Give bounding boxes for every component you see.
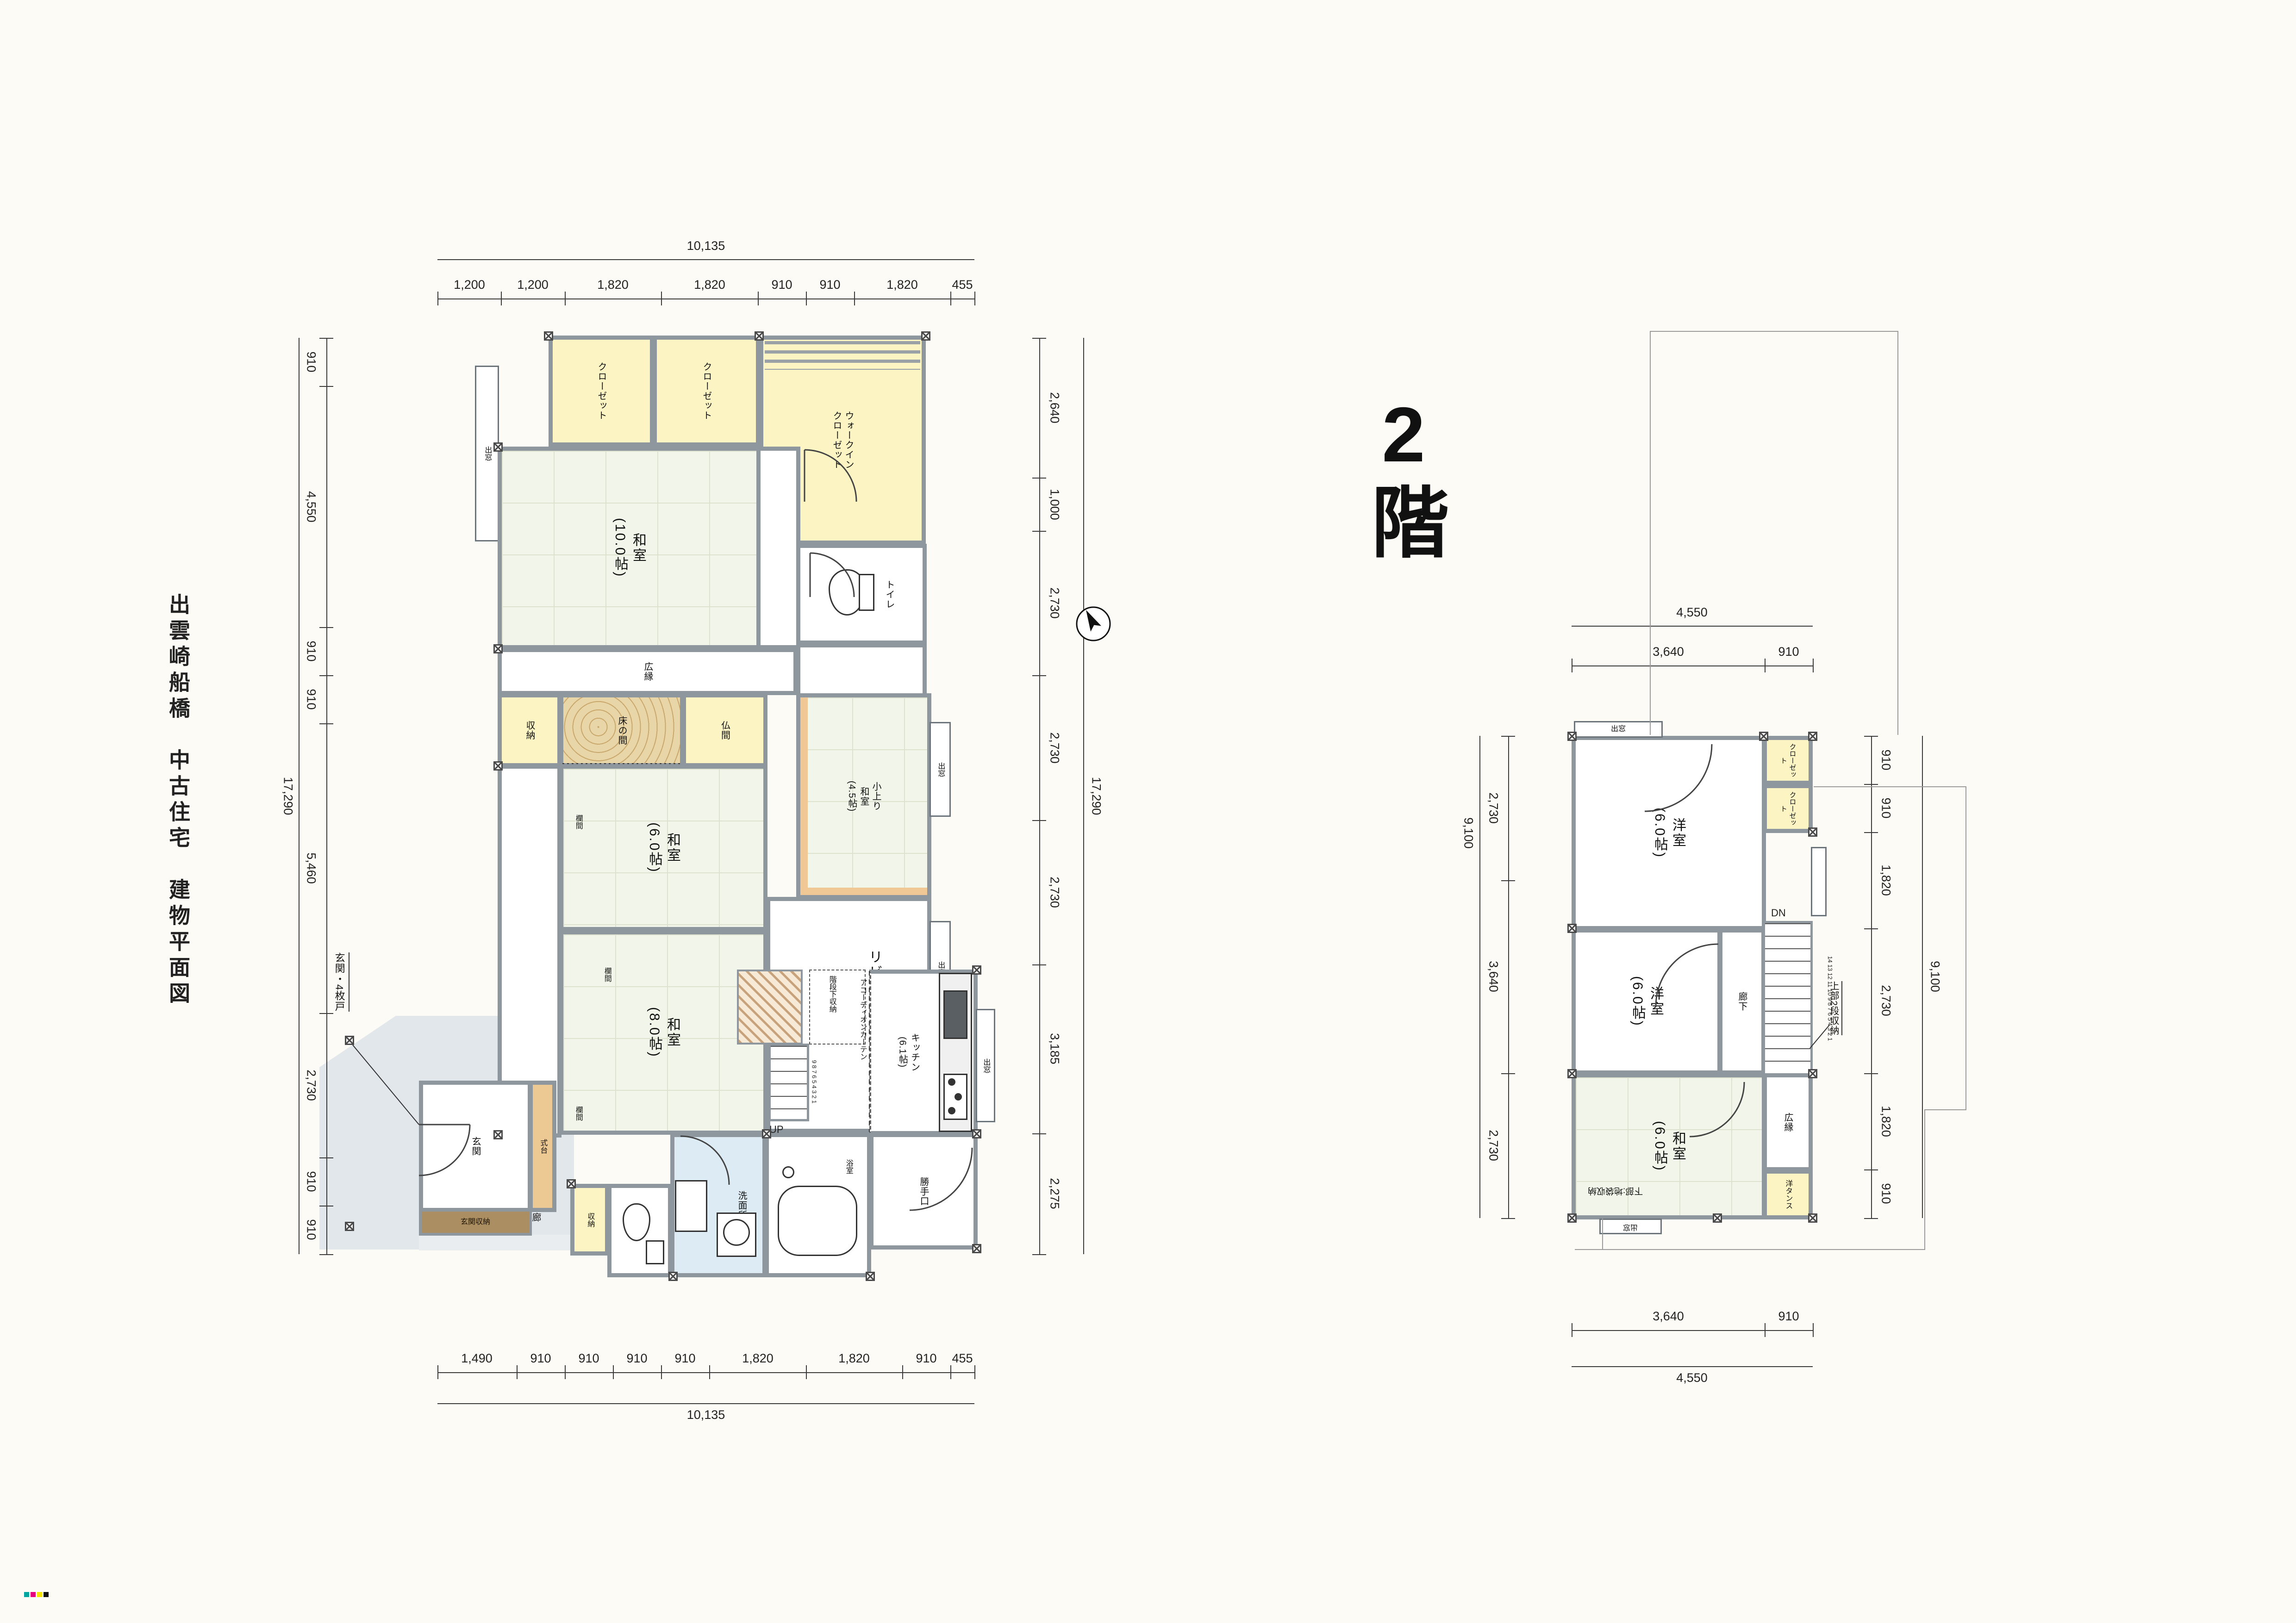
dim: 3,640	[1486, 961, 1501, 992]
stairs-2f-dn-label: DN	[1771, 907, 1786, 919]
dim-line	[299, 338, 299, 1254]
room-storage-hall: 収納	[570, 1184, 609, 1256]
room-washitsu-2f-label: 和室 (6.0帖)	[1651, 1121, 1687, 1172]
room-yoshitsu-b: 洋室 (6.0帖)	[1572, 928, 1722, 1075]
bay-window-west-label: 出窓	[482, 446, 492, 461]
vanity-icon	[675, 1180, 707, 1232]
bay-window-kitchen-label: 出窓	[981, 1058, 991, 1073]
dim: 2,730	[1879, 985, 1893, 1016]
dim: 1,820	[886, 278, 918, 292]
room-butsuma-label: 仏間	[719, 721, 731, 740]
dim: 2,275	[1048, 1178, 1062, 1209]
room-washitsu-10-label: 和室 (10.0帖)	[611, 518, 647, 578]
dim: 3,640	[1653, 1309, 1684, 1324]
dim: 1,820	[597, 278, 629, 292]
dim: 910	[304, 689, 318, 709]
dim: 1,820	[1879, 1106, 1893, 1137]
room-closet-2f-b: クローゼット	[1763, 784, 1813, 833]
room-butsuma: 仏間	[682, 693, 767, 767]
drawing-title: 出雲崎船橋 中古住宅 建物平面図	[163, 593, 193, 1008]
room-kitchen-61-label: キッチン (6.1帖)	[897, 1033, 921, 1072]
dim: 1,820	[742, 1351, 774, 1366]
corridor-2f: 廊下	[1718, 928, 1766, 1075]
dim: 455	[952, 278, 973, 292]
room-shikidai-label: 式台	[538, 1139, 548, 1154]
dim: 2,730	[1486, 1130, 1501, 1161]
floor2-title: 2階	[1365, 391, 1442, 563]
room-walkin-closet-label: ウォークイン クローゼット	[830, 411, 855, 469]
ranma-tag-1: 欄間	[573, 815, 583, 829]
dim-line	[437, 1372, 974, 1373]
dim-f1-left-total: 17,290	[281, 777, 295, 815]
stove-burner-icon	[948, 1107, 955, 1114]
dim: 910	[626, 1351, 647, 1366]
room-washitsu-8: 和室 (8.0帖)	[559, 930, 767, 1135]
genkan-storage-label: 玄関収納	[461, 1218, 490, 1227]
dim-line	[437, 298, 974, 299]
walkin-closet-hatch	[765, 341, 920, 370]
dim: 910	[1879, 797, 1893, 818]
ranma-tag-2: 欄間	[602, 967, 611, 982]
stairs-1f	[768, 1044, 809, 1121]
room-storage-tokonoma-label: 収納	[524, 721, 536, 740]
floor-plan-sheet: 出雲崎船橋 中古住宅 建物平面図 1階 2階 クローゼット クローゼット ウォー…	[0, 0, 2296, 1623]
room-hiroen-2f-label: 広縁	[1782, 1113, 1794, 1132]
dim-f2-bottom-total: 4,550	[1676, 1371, 1708, 1385]
dim: 910	[1879, 1183, 1893, 1204]
room-shikidai: 式台	[529, 1081, 556, 1212]
dim-line	[1083, 338, 1084, 1254]
dim: 910	[304, 351, 318, 372]
dim: 910	[304, 640, 318, 661]
room-tokonoma-label: 床の間	[616, 716, 628, 745]
north-compass-icon	[1077, 607, 1110, 640]
dim: 455	[952, 1351, 973, 1366]
drain-icon	[782, 1166, 794, 1178]
dim: 910	[578, 1351, 599, 1366]
dim: 5,460	[304, 852, 318, 884]
room-yoshitsu-a: 洋室 (6.0帖)	[1572, 736, 1766, 930]
room-washitsu-2f: 和室 (6.0帖)	[1572, 1073, 1766, 1219]
overlay-graphics	[0, 0, 2296, 1623]
dim-line	[1572, 626, 1813, 627]
dim-f2-left-total: 9,100	[1461, 817, 1476, 849]
dim-line	[326, 338, 327, 1254]
dim: 910	[916, 1351, 936, 1366]
dim: 1,820	[838, 1351, 870, 1366]
stove-burner-icon	[955, 1093, 962, 1101]
genkan-door-note: 玄関・4枚戸	[332, 952, 349, 1012]
genkan-storage: 玄関収納	[419, 1209, 532, 1236]
room-washitsu-6: 和室 (6.0帖)	[559, 765, 767, 931]
bay-window-2f-bottom-label: 出窓	[1623, 1222, 1638, 1231]
bay-window-2f-top: 出窓	[1574, 721, 1663, 738]
room-genkan: 玄関	[419, 1081, 532, 1212]
dim-f2-top-total: 4,550	[1676, 605, 1708, 620]
lower-storage-note: 下部:地袋収納	[1588, 1185, 1643, 1196]
room-closet-2: クローゼット	[653, 336, 760, 447]
room-washitsu-8-label: 和室 (8.0帖)	[645, 1007, 681, 1058]
dim: 910	[530, 1351, 551, 1366]
dim-line	[1039, 338, 1040, 1254]
room-hiroen-1f: 広縁	[498, 648, 798, 695]
hall-upper	[756, 447, 800, 649]
stairs-2f	[1763, 921, 1813, 1078]
dim: 4,550	[304, 491, 318, 522]
dim-line	[1871, 736, 1872, 1218]
toilet-sink-icon	[646, 1240, 664, 1264]
bay-window-east-1-label: 出窓	[936, 762, 945, 777]
dim: 910	[1879, 749, 1893, 770]
dim-f2-right-total: 9,100	[1928, 961, 1942, 992]
dim: 3,640	[1653, 645, 1684, 659]
bay-window-2f-bottom: 出窓	[1599, 1219, 1662, 1234]
dim: 2,730	[1048, 732, 1062, 764]
stove-burner-icon	[948, 1078, 955, 1086]
room-storage-tokonoma: 収納	[498, 693, 562, 767]
dim-f1-top-total: 10,135	[687, 239, 725, 253]
room-yoshitsu-b-label: 洋室 (6.0帖)	[1628, 976, 1665, 1027]
dim-line	[1572, 1366, 1813, 1367]
bay-window-east-1: 出窓	[930, 722, 951, 817]
dim: 910	[1778, 645, 1799, 659]
kitchen-sink-icon	[943, 990, 967, 1039]
dim: 1,490	[461, 1351, 493, 1366]
room-yoshitsu-a-label: 洋室 (6.0帖)	[1651, 808, 1687, 858]
dim-line	[1572, 1330, 1813, 1331]
dim: 2,730	[1048, 877, 1062, 908]
bay-window-kitchen: 出窓	[976, 1009, 995, 1122]
room-washitsu-6-label: 和室 (6.0帖)	[645, 822, 681, 873]
room-closet-2f-a: クローゼット	[1763, 736, 1813, 785]
dim-f1-right-total: 17,290	[1089, 777, 1104, 815]
bay-window-west: 出窓	[475, 366, 499, 541]
dim: 2,730	[304, 1070, 318, 1101]
washer-drum-icon	[723, 1219, 750, 1246]
dim: 910	[771, 278, 792, 292]
room-closet-2f-a-label: クローゼット	[1779, 740, 1797, 781]
room-hiroen-1f-label: 広縁	[642, 662, 654, 681]
dim: 2,730	[1048, 587, 1062, 619]
bathtub-icon	[778, 1186, 857, 1256]
room-closet-2-label: クローゼット	[700, 362, 712, 420]
room-koagari-washitsu: 小上り 和室 (4.5帖)	[796, 693, 931, 899]
dim: 2,640	[1048, 392, 1062, 423]
dim-line	[1508, 736, 1509, 1218]
room-katteguchi-label: 勝手口	[917, 1177, 930, 1206]
room-toilet-north-label: トイレ	[883, 580, 895, 609]
stair-hatch-1f	[737, 970, 803, 1045]
dim-line	[1922, 736, 1923, 1218]
room-bath-label: 浴室	[843, 1159, 853, 1174]
room-closet-2f-b-label: クローゼット	[1779, 788, 1797, 829]
room-katteguchi: 勝手口	[869, 1133, 978, 1250]
dim-f1-bottom-total: 10,135	[687, 1408, 725, 1422]
dim: 1,200	[517, 278, 549, 292]
room-yotansu-label: 洋タンス	[1783, 1180, 1793, 1209]
dim: 910	[304, 1171, 318, 1192]
dim: 1,820	[694, 278, 725, 292]
bay-window-2f-top-label: 出窓	[1611, 725, 1626, 734]
understair-storage-label: 階段下収納	[827, 976, 836, 1013]
accordion-curtain-label: アコーディオンカーテン	[857, 979, 867, 1060]
dim: 1,820	[1879, 864, 1893, 896]
porch-step	[419, 1235, 574, 1250]
dim: 910	[1778, 1309, 1799, 1324]
dim: 3,185	[1048, 1033, 1062, 1064]
dim-line	[1572, 665, 1813, 666]
room-washitsu-10: 和室 (10.0帖)	[498, 447, 761, 649]
dim: 910	[819, 278, 840, 292]
room-closet-1-label: クローゼット	[595, 362, 607, 420]
dim-line	[1479, 736, 1480, 1218]
room-closet-1: クローゼット	[549, 336, 654, 447]
dim: 2,730	[1486, 792, 1501, 824]
ranma-tag-3: 欄間	[573, 1106, 583, 1121]
dim: 1,200	[454, 278, 485, 292]
room-genkan-label: 玄関	[469, 1137, 481, 1156]
corridor-2f-label: 廊下	[1736, 992, 1748, 1011]
room-tokonoma: 床の間	[559, 693, 684, 767]
toilet-tank-icon	[859, 574, 874, 611]
dim-line	[437, 1403, 974, 1404]
window-2f-east	[1811, 847, 1827, 916]
room-hiroen-2f: 広縁	[1763, 1073, 1813, 1171]
dim-line	[437, 259, 974, 260]
upper-storage-note: 上部2段収納	[1828, 981, 1842, 1035]
room-koagari-washitsu-label: 小上り 和室 (4.5帖)	[846, 781, 882, 812]
stairs-1f-step-numbers: 9 8 7 6 5 4 3 2 1	[811, 1060, 817, 1104]
dim: 910	[674, 1351, 695, 1366]
room-yotansu: 洋タンス	[1763, 1169, 1813, 1219]
dim: 1,000	[1048, 489, 1062, 520]
dim: 910	[304, 1219, 318, 1240]
room-storage-hall-label: 収納	[585, 1213, 595, 1227]
